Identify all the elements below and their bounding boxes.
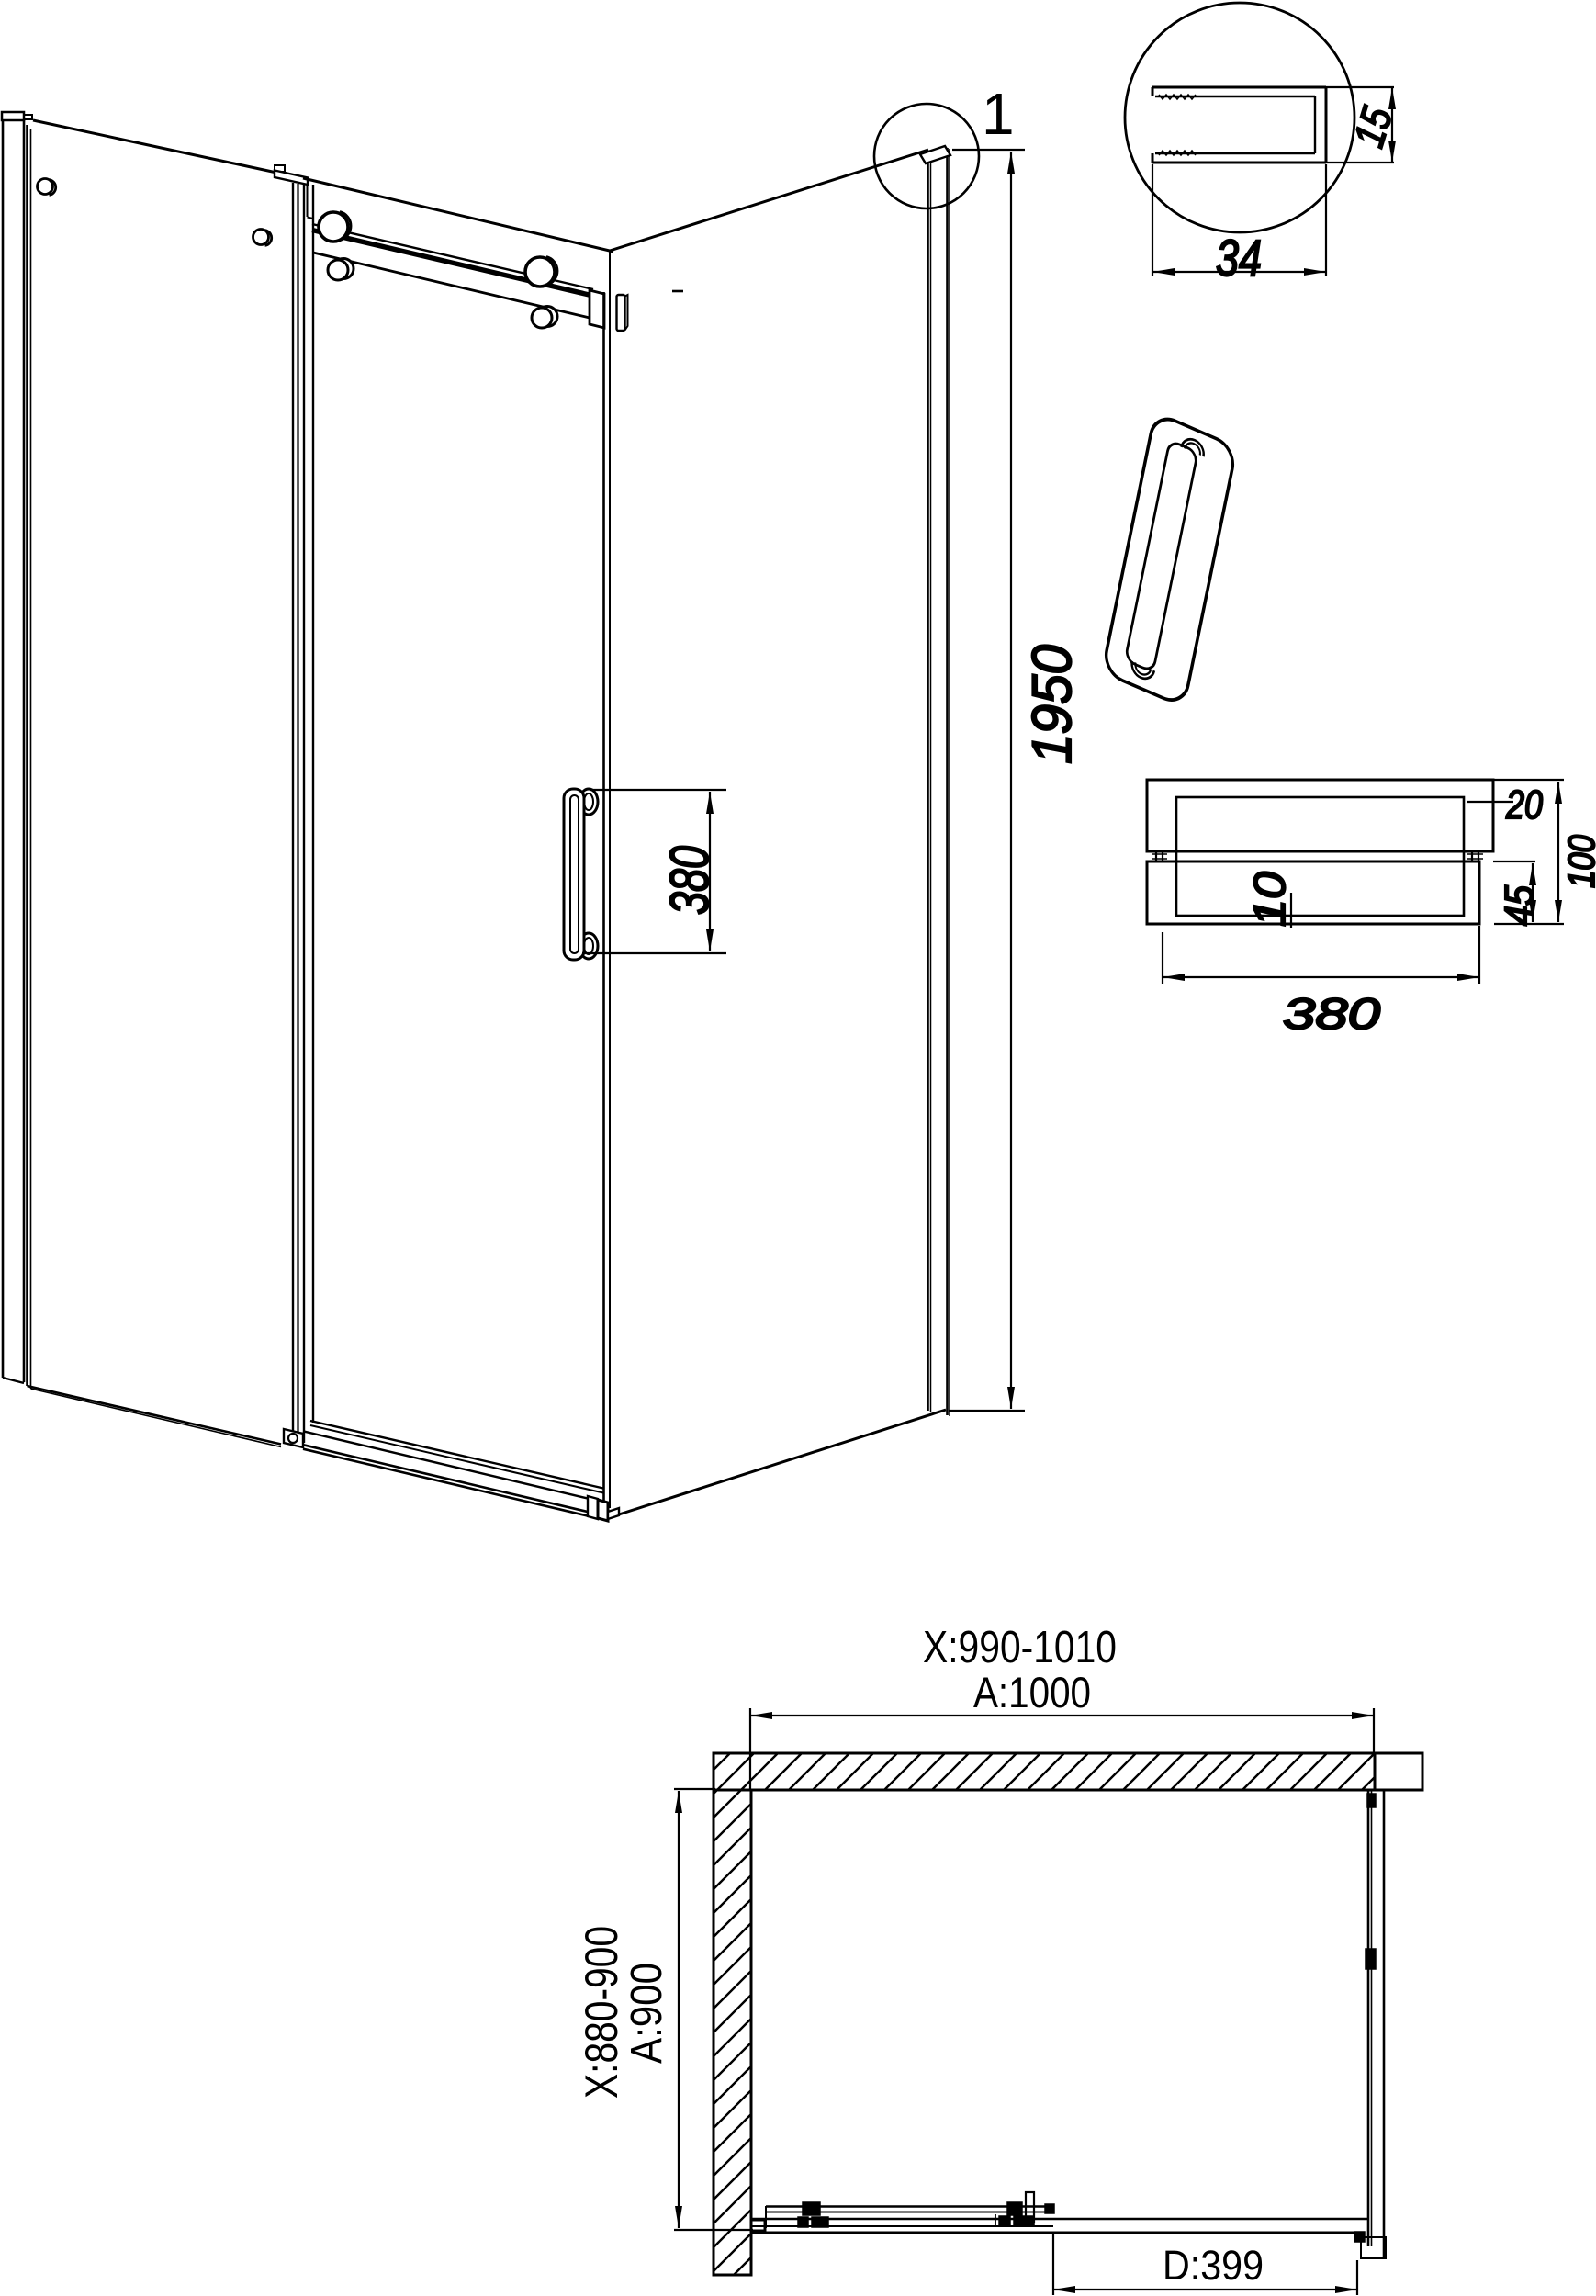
svg-text:20: 20: [1505, 782, 1543, 827]
svg-text:1: 1: [982, 81, 1015, 147]
svg-text:1950: 1950: [1021, 645, 1083, 764]
svg-text:45: 45: [1497, 885, 1542, 926]
svg-text:X:880-900: X:880-900: [576, 1926, 627, 2099]
svg-text:10: 10: [1246, 872, 1295, 927]
svg-text:34: 34: [1216, 229, 1262, 287]
svg-text:A:900: A:900: [623, 1963, 671, 2064]
svg-text:380: 380: [1283, 989, 1380, 1038]
svg-text:X:990-1010: X:990-1010: [923, 1623, 1117, 1672]
svg-text:A:1000: A:1000: [973, 1668, 1091, 1716]
svg-text:D:399: D:399: [1163, 2242, 1264, 2289]
svg-text:100: 100: [1560, 835, 1596, 888]
svg-text:380: 380: [659, 846, 720, 915]
